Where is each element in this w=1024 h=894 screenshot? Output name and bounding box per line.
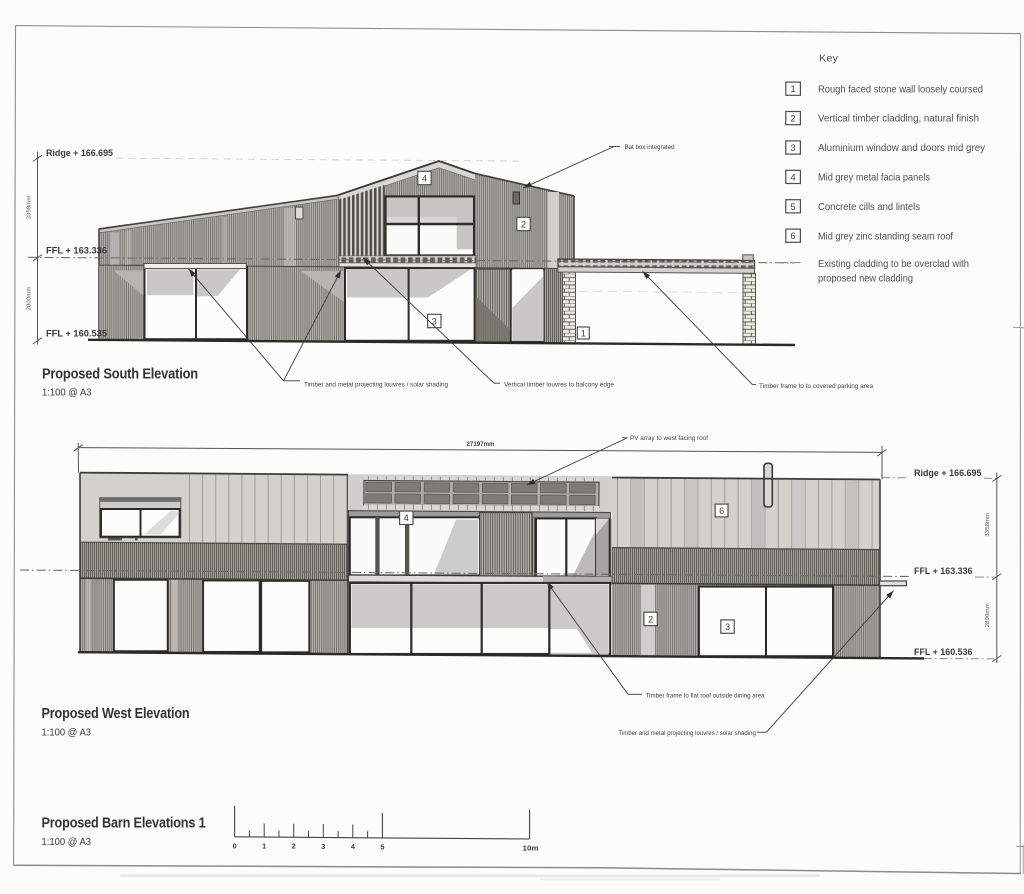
svg-text:FFL + 160.535: FFL + 160.535: [46, 328, 107, 338]
svg-text:proposed new cladding: proposed new cladding: [818, 273, 913, 284]
svg-text:4: 4: [351, 842, 355, 851]
svg-text:Mid grey metal facia panels: Mid grey metal facia panels: [818, 173, 930, 184]
svg-text:Timber frame to to covered par: Timber frame to to covered parking area: [759, 383, 873, 390]
svg-text:4: 4: [791, 172, 796, 182]
svg-text:10m: 10m: [523, 843, 539, 852]
svg-text:FFL + 160.536: FFL + 160.536: [914, 646, 973, 657]
svg-text:Concrete cills and lintels: Concrete cills and lintels: [818, 202, 920, 213]
svg-text:1: 1: [262, 842, 266, 851]
svg-text:0: 0: [233, 841, 237, 850]
svg-text:1:100 @ A3: 1:100 @ A3: [42, 728, 92, 739]
svg-text:1: 1: [581, 328, 586, 338]
svg-text:6: 6: [791, 231, 796, 241]
svg-text:Key: Key: [819, 54, 838, 65]
svg-text:1: 1: [791, 84, 796, 94]
svg-text:Bat box integrated: Bat box integrated: [625, 144, 675, 151]
svg-text:FFL + 163.336: FFL + 163.336: [46, 245, 107, 255]
svg-text:Timber frame to flat roof outs: Timber frame to flat roof outside dining…: [646, 693, 765, 700]
svg-text:5: 5: [380, 842, 384, 851]
svg-text:3: 3: [321, 842, 325, 851]
svg-text:4: 4: [422, 173, 427, 183]
svg-text:1:100 @ A3: 1:100 @ A3: [42, 837, 92, 848]
svg-text:3: 3: [791, 143, 796, 153]
svg-text:3359mm: 3359mm: [27, 195, 33, 219]
svg-text:Vertical timber cladding, natu: Vertical timber cladding, natural finish: [818, 114, 979, 125]
svg-text:1:100 @ A3: 1:100 @ A3: [42, 388, 92, 399]
svg-text:Timber and metal projecting lo: Timber and metal projecting louvres / so…: [304, 381, 448, 388]
svg-text:Ridge + 166.695: Ridge + 166.695: [46, 148, 113, 158]
svg-text:6: 6: [719, 506, 724, 516]
svg-text:Aluminium window and doors mi: Aluminium window and doors mid grey: [818, 143, 985, 154]
svg-text:2: 2: [521, 219, 526, 229]
svg-text:FFL + 163.336: FFL + 163.336: [914, 565, 973, 576]
svg-text:3358mm: 3358mm: [985, 512, 991, 536]
svg-text:3: 3: [725, 622, 730, 632]
svg-text:27197mm: 27197mm: [467, 441, 495, 448]
svg-text:Vertical timber louvres to bal: Vertical timber louvres to balcony edge: [504, 382, 614, 389]
svg-text:2800mm: 2800mm: [27, 286, 33, 310]
svg-text:PV array to west facing roof: PV array to west facing roof: [630, 435, 708, 442]
svg-text:Rough faced stone wall loosely: Rough faced stone wall loosely coursed: [818, 84, 983, 95]
svg-text:4: 4: [404, 513, 409, 523]
svg-text:Proposed West Elevation: Proposed West Elevation: [42, 706, 190, 722]
svg-text:Ridge + 166.695: Ridge + 166.695: [914, 467, 982, 478]
svg-text:Proposed Barn Elevations 1: Proposed Barn Elevations 1: [42, 815, 206, 831]
svg-text:5: 5: [791, 202, 796, 212]
svg-text:2: 2: [292, 842, 296, 851]
svg-text:Proposed South Elevation: Proposed South Elevation: [42, 367, 198, 383]
svg-text:2: 2: [791, 114, 796, 124]
svg-text:2800mm: 2800mm: [985, 603, 991, 627]
svg-text:Mid grey zinc standing seam ro: Mid grey zinc standing seam roof: [818, 231, 953, 242]
svg-text:Existing cladding to be overcl: Existing cladding to be overclad with: [818, 259, 969, 270]
svg-text:Timber and metal projecting lo: Timber and metal projecting louvres / so…: [618, 730, 756, 737]
svg-text:2: 2: [648, 614, 653, 624]
